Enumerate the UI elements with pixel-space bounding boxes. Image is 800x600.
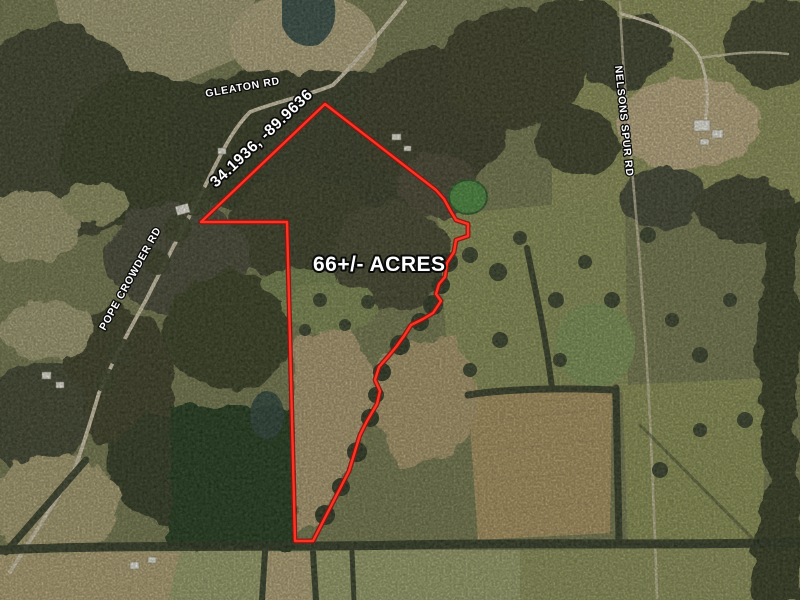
- satellite-map-canvas: GLEATON RD 34.1936, -89.9636 POPE CROWDE…: [0, 0, 800, 600]
- acreage-label: 66+/- ACRES: [313, 253, 446, 276]
- aerial-property-map: GLEATON RD 34.1936, -89.9636 POPE CROWDE…: [0, 0, 800, 600]
